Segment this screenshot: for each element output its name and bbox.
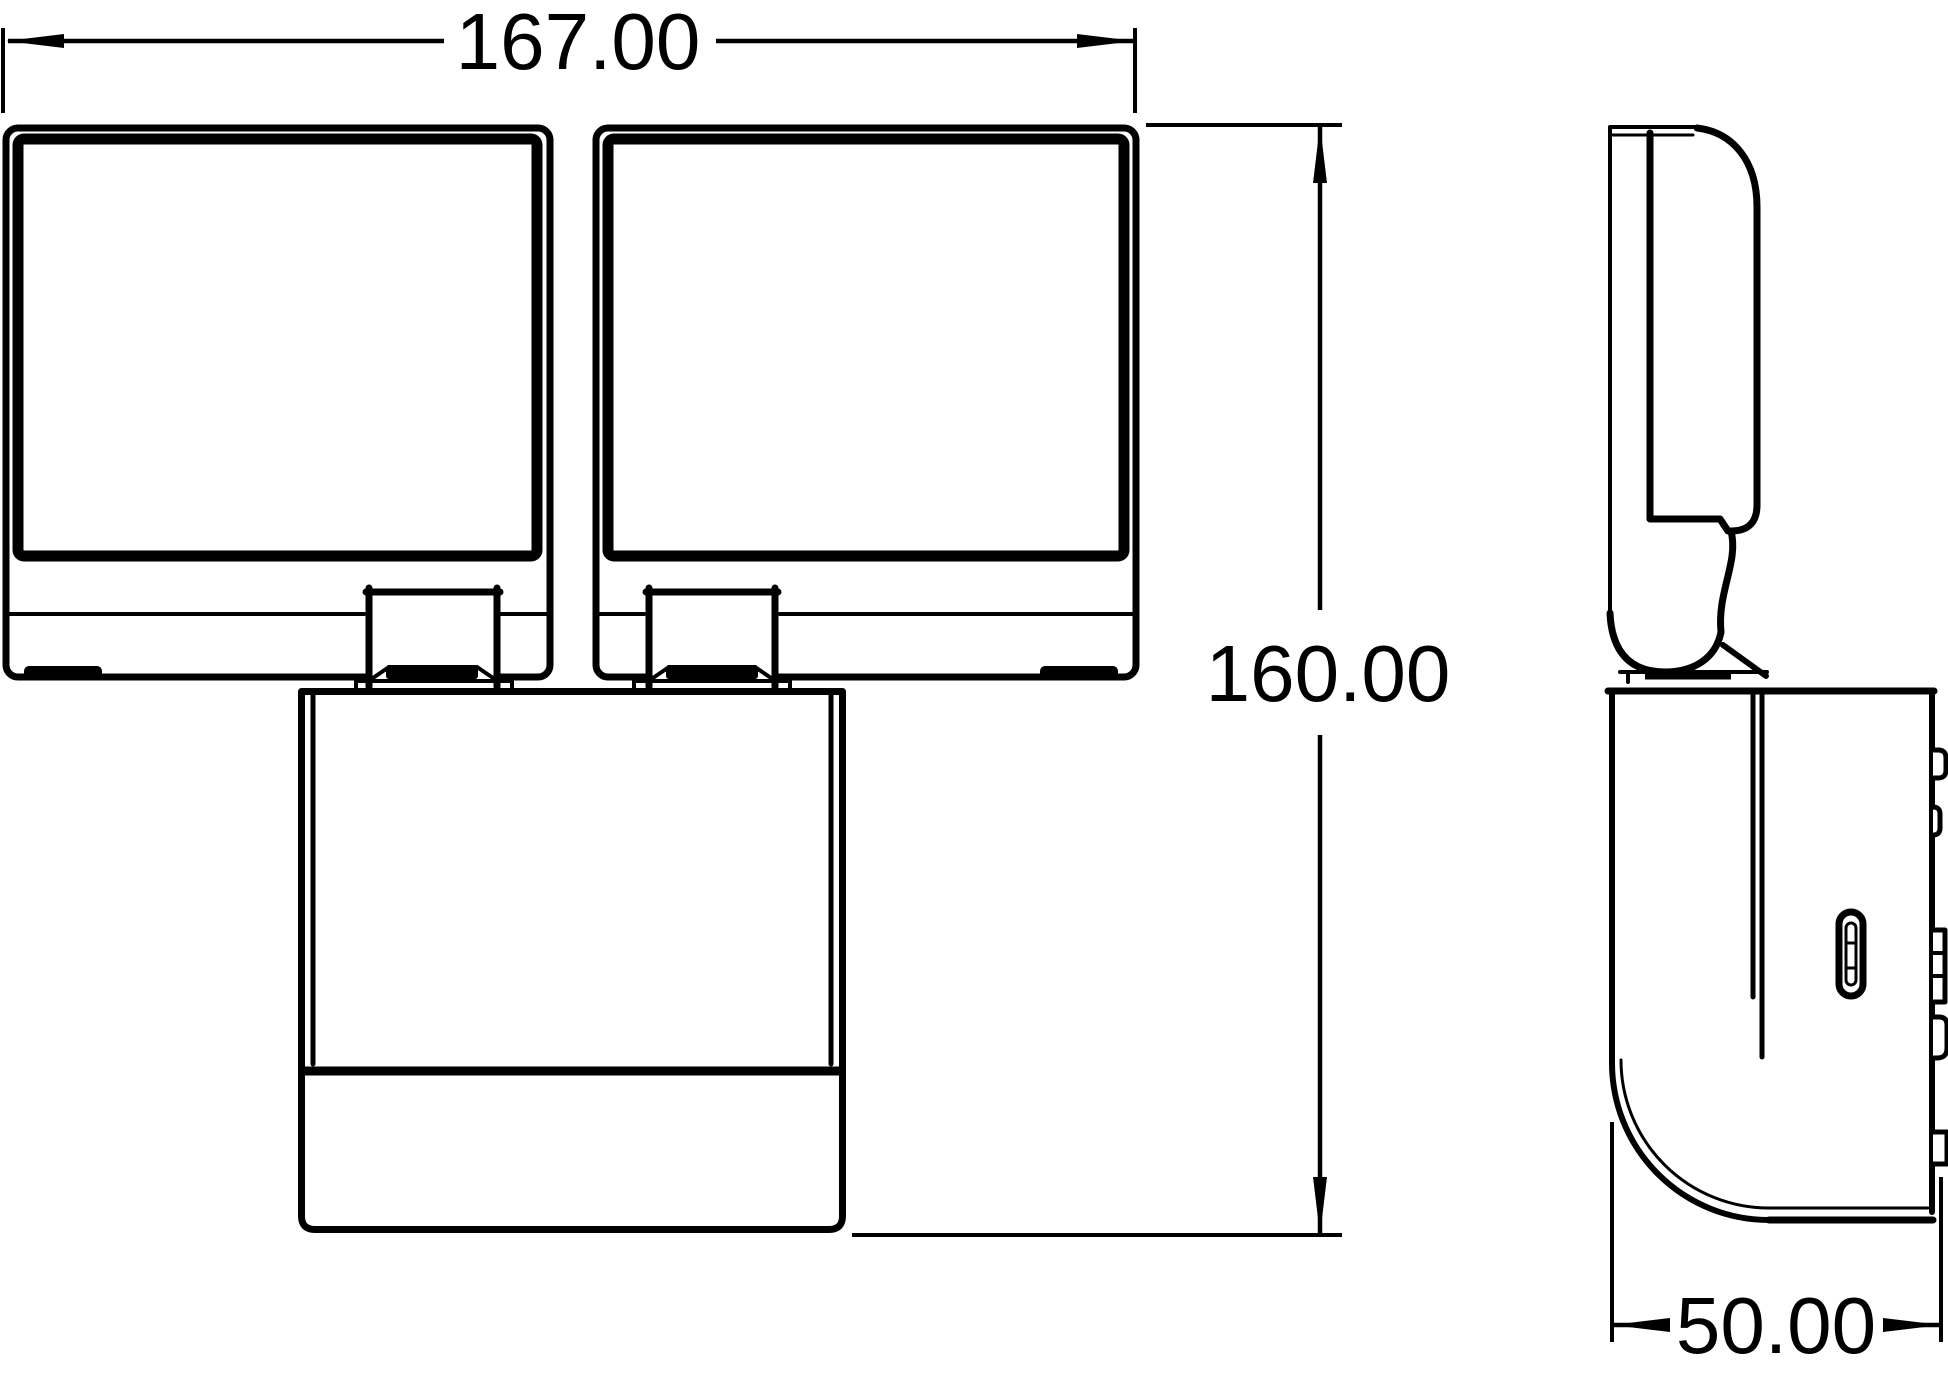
dimensional-drawing: 167.00 160.00 50.00 xyxy=(0,0,1948,1377)
side-body xyxy=(1608,691,1947,1220)
dimension-depth: 50.00 xyxy=(1612,1122,1941,1370)
width-arrow-left xyxy=(6,34,64,48)
side-hinge-knuckle xyxy=(1610,613,1721,672)
right-hinge-pin xyxy=(666,665,758,679)
right-head-foot-pad xyxy=(1040,666,1118,679)
width-arrow-right xyxy=(1077,34,1135,48)
side-head-back-edge xyxy=(1697,128,1757,531)
side-hinge-neck xyxy=(1721,531,1733,632)
left-hinge-base-plate xyxy=(356,681,512,689)
side-head-housing-edge xyxy=(1650,133,1728,531)
side-view xyxy=(1608,127,1947,1220)
side-body-slot-outer xyxy=(1839,912,1863,996)
side-head xyxy=(1610,127,1767,682)
side-body-round-corner-outer xyxy=(1612,1063,1769,1220)
front-view xyxy=(6,128,1136,1230)
left-head-foot-pad xyxy=(24,666,102,679)
side-tab-4 xyxy=(1933,1132,1947,1164)
side-tab-1 xyxy=(1933,750,1946,778)
side-terminal-tab xyxy=(1933,930,1945,1002)
width-dimension-label: 167.00 xyxy=(456,0,701,86)
height-arrow-bottom xyxy=(1313,1177,1327,1235)
dimension-width: 167.00 xyxy=(3,0,1135,113)
front-body xyxy=(302,692,843,1230)
front-right-bracket xyxy=(634,588,790,689)
height-dimension-label: 160.00 xyxy=(1206,629,1451,718)
left-hinge-pin xyxy=(386,665,478,679)
drawing-canvas: 167.00 160.00 50.00 xyxy=(0,0,1948,1377)
front-left-bracket xyxy=(356,588,512,689)
side-tab-3 xyxy=(1933,1017,1947,1058)
height-arrow-top xyxy=(1313,125,1327,183)
depth-arrow-left xyxy=(1612,1318,1670,1332)
side-tab-2 xyxy=(1933,807,1940,835)
depth-dimension-label: 50.00 xyxy=(1676,1281,1876,1370)
right-hinge-base-plate xyxy=(634,681,790,689)
depth-arrow-right xyxy=(1883,1318,1941,1332)
front-body-outline xyxy=(302,692,843,1230)
